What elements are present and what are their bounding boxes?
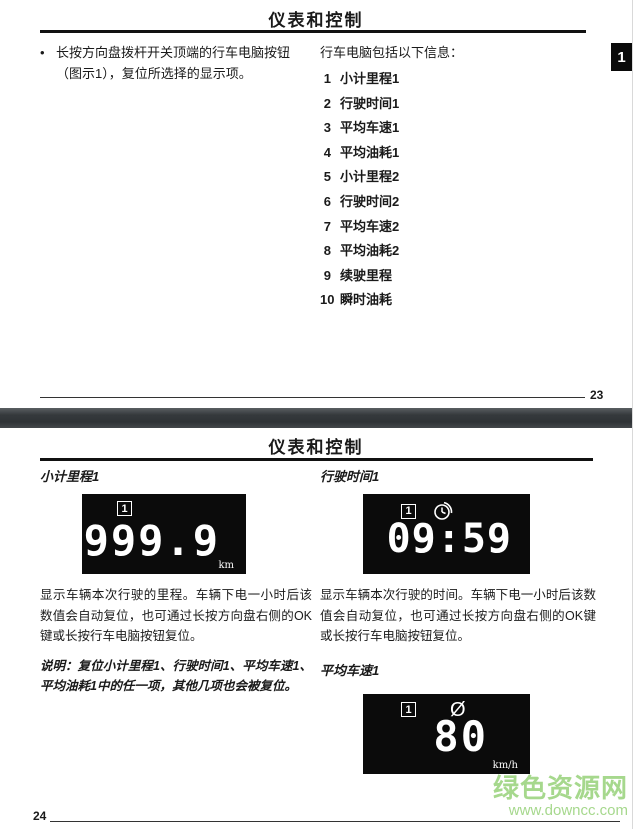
driving-time-section: 行驶时间1 1 09:59 (320, 466, 596, 785)
page-number: 23 (590, 388, 603, 402)
bullet-item: • 长按方向盘拨杆开关顶端的行车电脑按钮（图示1），复位所选择的显示项。 (40, 42, 312, 84)
average-speed-unit: km/h (493, 760, 518, 771)
list-item: 9续驶里程 (320, 264, 596, 289)
bullet-text: 长按方向盘拨杆开关顶端的行车电脑按钮（图示1），复位所选择的显示项。 (56, 42, 312, 84)
list-item-number: 9 (320, 264, 340, 289)
page-title: 仪表和控制 (0, 6, 632, 31)
trip-odometer-unit: km (218, 560, 234, 571)
list-item-number: 4 (320, 141, 340, 166)
driving-time-display: 1 09:59 (363, 494, 530, 574)
page-23-left-column: • 长按方向盘拨杆开关顶端的行车电脑按钮（图示1），复位所选择的显示项。 (40, 42, 312, 313)
list-item-label: 小计里程2 (340, 165, 399, 190)
list-item-label: 行驶时间2 (340, 190, 399, 215)
list-item: 3平均车速1 (320, 116, 596, 141)
page-24-columns: 小计里程1 1 999.9 km 显示车辆本次行驶的里程。车辆下电一小时后该数值… (40, 466, 596, 785)
trip-odometer-heading: 小计里程1 (40, 466, 312, 485)
list-item-number: 7 (320, 215, 340, 240)
average-speed-value: 80 (433, 716, 488, 758)
list-item-number: 3 (320, 116, 340, 141)
page-number: 24 (33, 809, 46, 823)
list-item-label: 平均油耗2 (340, 239, 399, 264)
footer-rule (40, 397, 585, 398)
list-item-number: 8 (320, 239, 340, 264)
watermark-url[interactable]: www.downcc.com (493, 802, 628, 819)
list-item: 2行驶时间1 (320, 92, 596, 117)
list-item-label: 平均车速1 (340, 116, 399, 141)
trip-odometer-section: 小计里程1 1 999.9 km 显示车辆本次行驶的里程。车辆下电一小时后该数值… (40, 466, 312, 785)
list-item: 10瞬时油耗 (320, 288, 596, 313)
trip-computer-list: 1小计里程1 2行驶时间1 3平均车速1 4平均油耗1 5小计里程2 6行驶时间… (320, 67, 596, 313)
driving-time-heading: 行驶时间1 (320, 466, 596, 485)
list-item: 5小计里程2 (320, 165, 596, 190)
list-item-label: 平均油耗1 (340, 141, 399, 166)
title-rule (40, 30, 586, 33)
list-item-label: 平均车速2 (340, 215, 399, 240)
page-23-right-column: 行车电脑包括以下信息： 1小计里程1 2行驶时间1 3平均车速1 4平均油耗1 … (320, 42, 596, 313)
list-item: 8平均油耗2 (320, 239, 596, 264)
display-topline: 1 (117, 501, 132, 516)
page-break-divider (0, 408, 633, 428)
list-item-label: 瞬时油耗 (340, 288, 392, 313)
title-rule (40, 458, 593, 461)
bullet-icon: • (40, 42, 56, 84)
driving-time-value: 09:59 (387, 518, 512, 560)
chapter-tab: 1 (611, 43, 632, 71)
trip-indicator-box: 1 (401, 702, 416, 717)
list-item-number: 1 (320, 67, 340, 92)
average-speed-heading: 平均车速1 (320, 660, 596, 679)
trip-odometer-description: 显示车辆本次行驶的里程。车辆下电一小时后该数值会自动复位，也可通过长按方向盘右侧… (40, 585, 312, 647)
list-item-number: 10 (320, 288, 340, 313)
footer-rule (50, 821, 620, 822)
list-item-label: 行驶时间1 (340, 92, 399, 117)
watermark-site-name[interactable]: 绿色资源网 (493, 775, 628, 802)
list-item-number: 6 (320, 190, 340, 215)
page-23-columns: • 长按方向盘拨杆开关顶端的行车电脑按钮（图示1），复位所选择的显示项。 行车电… (40, 42, 596, 313)
list-item: 4平均油耗1 (320, 141, 596, 166)
list-item-number: 5 (320, 165, 340, 190)
watermark-link[interactable]: 绿色资源网 www.downcc.com (493, 775, 628, 819)
list-item: 1小计里程1 (320, 67, 596, 92)
list-item-label: 小计里程1 (340, 67, 399, 92)
list-item: 7平均车速2 (320, 215, 596, 240)
list-item-number: 2 (320, 92, 340, 117)
manual-scan: 仪表和控制 • 长按方向盘拨杆开关顶端的行车电脑按钮（图示1），复位所选择的显示… (0, 0, 633, 829)
trip-odometer-value: 999.9 (84, 520, 220, 562)
list-item-label: 续驶里程 (340, 264, 392, 289)
driving-time-description: 显示车辆本次行驶的时间。车辆下电一小时后该数值会自动复位，也可通过长按方向盘右侧… (320, 585, 596, 647)
reset-note: 说明：复位小计里程1、行驶时间1、平均车速1、平均油耗1中的任一项，其他几项也会… (40, 656, 312, 697)
trip-computer-list-header: 行车电脑包括以下信息： (320, 42, 596, 63)
page-title: 仪表和控制 (0, 433, 632, 458)
average-speed-display: 1 Ø 80 km/h (363, 694, 530, 774)
trip-odometer-display: 1 999.9 km (82, 494, 246, 574)
trip-indicator-box: 1 (117, 501, 132, 516)
list-item: 6行驶时间2 (320, 190, 596, 215)
